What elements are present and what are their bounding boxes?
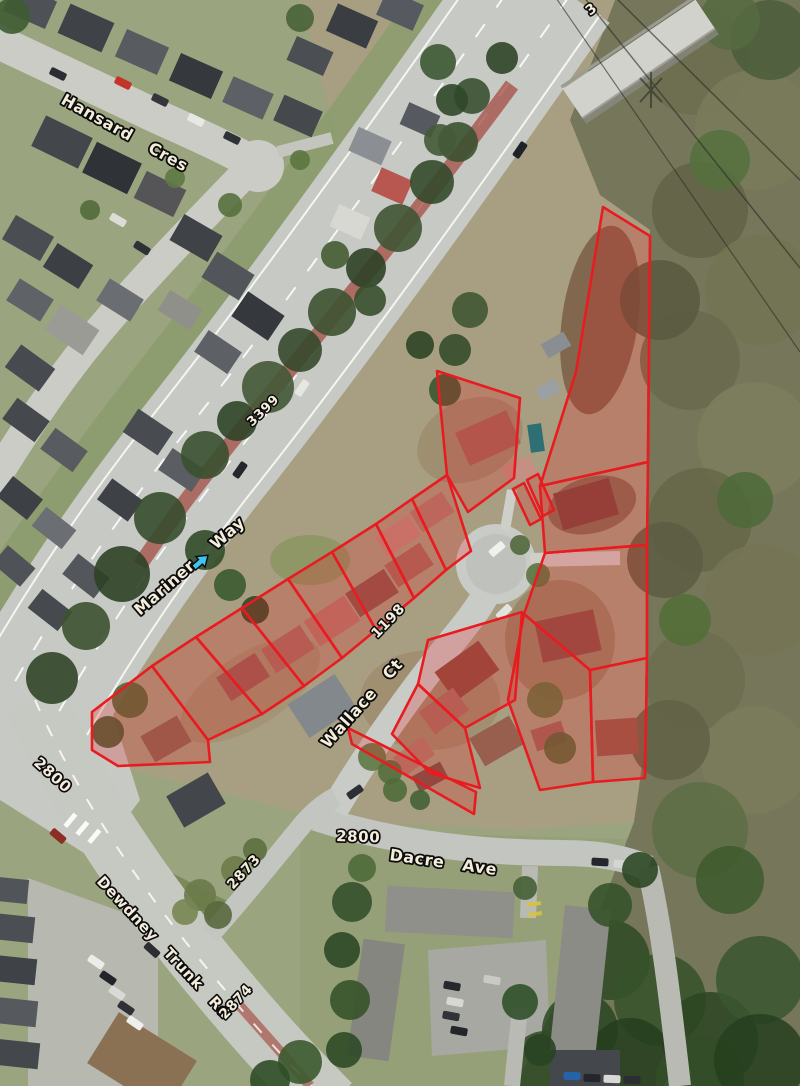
tree-canopy <box>172 899 198 925</box>
tree-canopy <box>510 535 530 555</box>
tree-canopy <box>410 160 454 204</box>
tree-canopy <box>324 932 360 968</box>
car <box>591 858 608 867</box>
tree-canopy <box>62 602 110 650</box>
forest-canopy <box>716 936 800 1024</box>
car <box>623 1076 640 1085</box>
tree-canopy <box>134 492 186 544</box>
tree-canopy <box>286 4 314 32</box>
tree-canopy <box>513 876 537 900</box>
tree-canopy <box>26 652 78 704</box>
tree-canopy <box>452 292 488 328</box>
tree-canopy <box>424 124 456 156</box>
car <box>563 1072 580 1081</box>
car <box>603 1075 620 1084</box>
forest-canopy <box>717 472 773 528</box>
tree-canopy <box>278 328 322 372</box>
tree-canopy <box>410 790 430 810</box>
building-roof <box>0 913 35 943</box>
tree-canopy <box>218 193 242 217</box>
tree-canopy <box>420 44 456 80</box>
tree-canopy <box>436 84 468 116</box>
forest-canopy <box>690 130 750 190</box>
tree-canopy <box>439 334 471 366</box>
building-roof <box>0 997 38 1027</box>
tree-canopy <box>406 331 434 359</box>
tree-canopy <box>383 778 407 802</box>
tree-canopy <box>354 284 386 316</box>
tree-canopy <box>204 901 232 929</box>
tree-canopy <box>290 150 310 170</box>
tree-canopy <box>374 204 422 252</box>
tree-canopy <box>486 42 518 74</box>
parcel-outline-p13[interactable] <box>590 658 647 782</box>
aerial-map-viewport[interactable]: Hansard Cres33993MarinerWay1198Wallace C… <box>0 0 800 1086</box>
building-roof <box>0 955 37 985</box>
tree-canopy <box>321 241 349 269</box>
tree-canopy <box>348 854 376 882</box>
tree-canopy <box>214 569 246 601</box>
tree-canopy <box>181 431 229 479</box>
tree-canopy <box>326 1032 362 1068</box>
aerial-imagery: Hansard Cres33993MarinerWay1198Wallace C… <box>0 0 800 1086</box>
forest-canopy <box>696 846 764 914</box>
building-roof <box>385 886 515 939</box>
tree-canopy <box>524 1034 556 1066</box>
tree-canopy <box>622 852 658 888</box>
tree-canopy <box>330 980 370 1020</box>
tree-canopy <box>346 248 386 288</box>
forest-canopy <box>659 594 711 646</box>
tree-canopy <box>332 882 372 922</box>
tree-canopy <box>308 288 356 336</box>
car <box>583 1074 600 1083</box>
tree-canopy <box>80 200 100 220</box>
building-roof <box>0 1039 40 1069</box>
building-roof <box>0 876 29 904</box>
map-label-addr-2800-dacre: 2800 <box>336 827 381 847</box>
tree-canopy <box>502 984 538 1020</box>
tree-canopy <box>588 883 632 927</box>
